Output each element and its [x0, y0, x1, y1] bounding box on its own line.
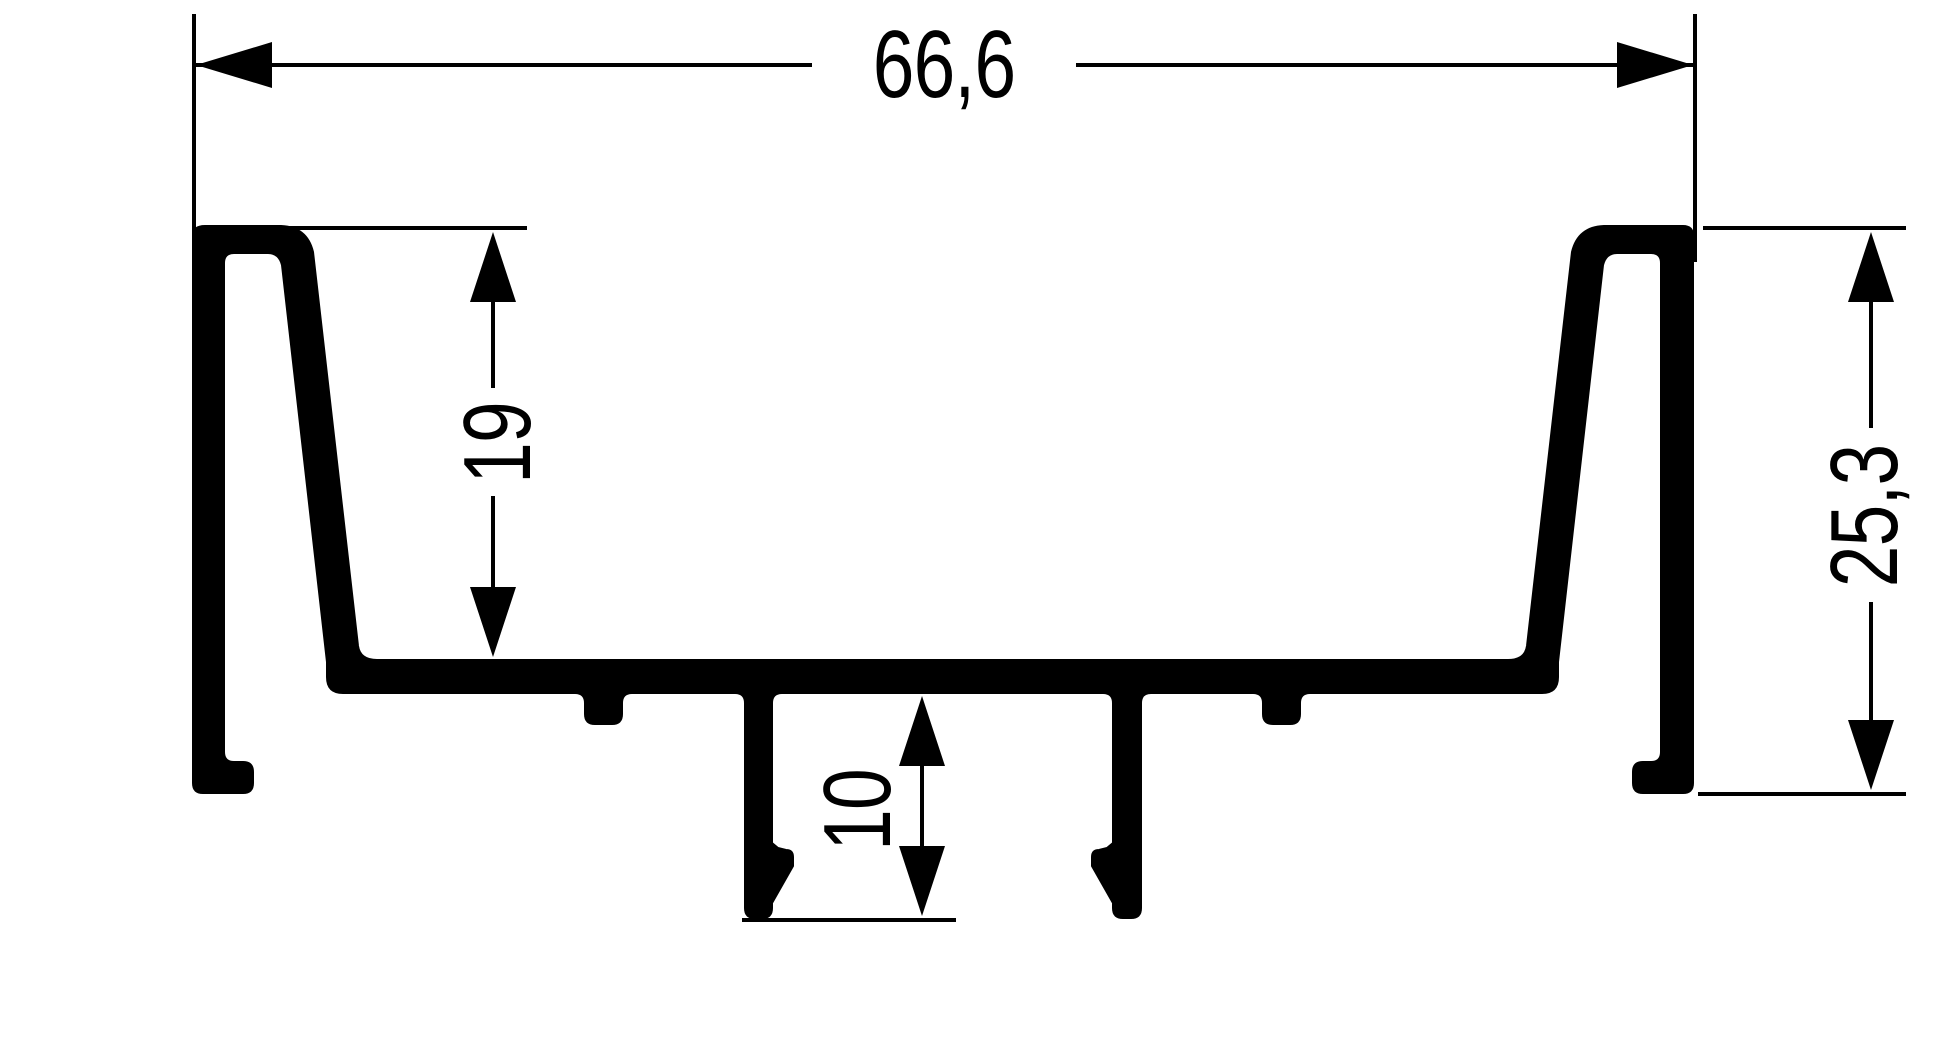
- profile-shape: [193, 226, 1693, 918]
- arrowhead-down-icon: [470, 587, 516, 657]
- dimension-label-overall-width: 66,6: [873, 11, 1016, 118]
- arrowhead-down-icon: [1848, 720, 1894, 790]
- technical-drawing-canvas: 66,6 19 10 25,3: [0, 0, 1944, 1039]
- dimension-label-overall-height: 25,3: [1811, 445, 1918, 588]
- arrowhead-up-icon: [899, 696, 945, 766]
- dimension-overall-width: 66,6: [194, 11, 1695, 262]
- arrowhead-up-icon: [1848, 232, 1894, 302]
- arrowhead-right-icon: [1617, 42, 1693, 88]
- profile-cross-section-drawing: 66,6 19 10 25,3: [0, 0, 1944, 1039]
- dimension-overall-height: 25,3: [1698, 228, 1918, 794]
- arrowhead-left-icon: [196, 42, 272, 88]
- arrowhead-up-icon: [470, 232, 516, 302]
- arrowhead-down-icon: [899, 846, 945, 916]
- dimension-label-leg-depth: 10: [804, 769, 911, 851]
- dimension-label-inner-depth: 19: [444, 402, 551, 484]
- profile-outline: [193, 226, 1693, 918]
